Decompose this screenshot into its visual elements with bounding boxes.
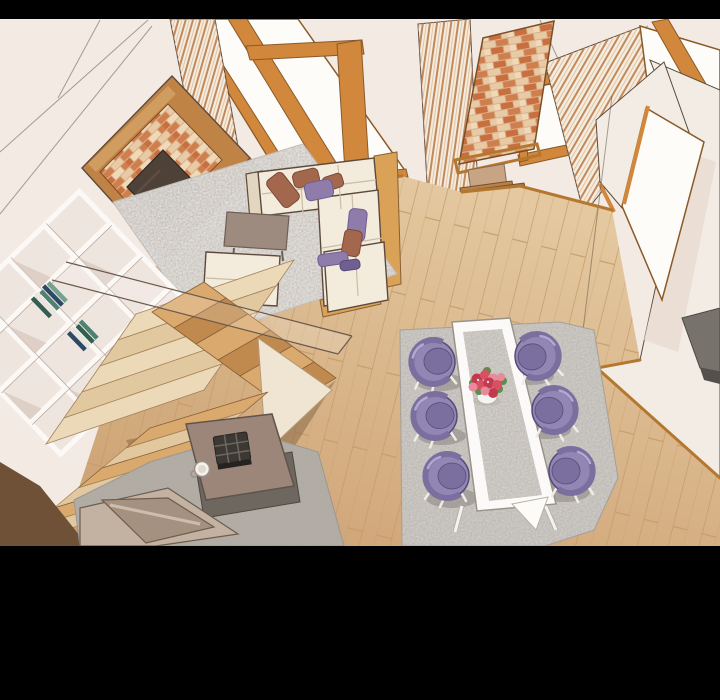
webtoon-panel	[0, 0, 720, 700]
letterbox-top-bar	[0, 0, 720, 19]
room-illustration	[0, 0, 720, 700]
letterbox-bottom-bar	[0, 546, 720, 700]
tray	[213, 432, 252, 470]
